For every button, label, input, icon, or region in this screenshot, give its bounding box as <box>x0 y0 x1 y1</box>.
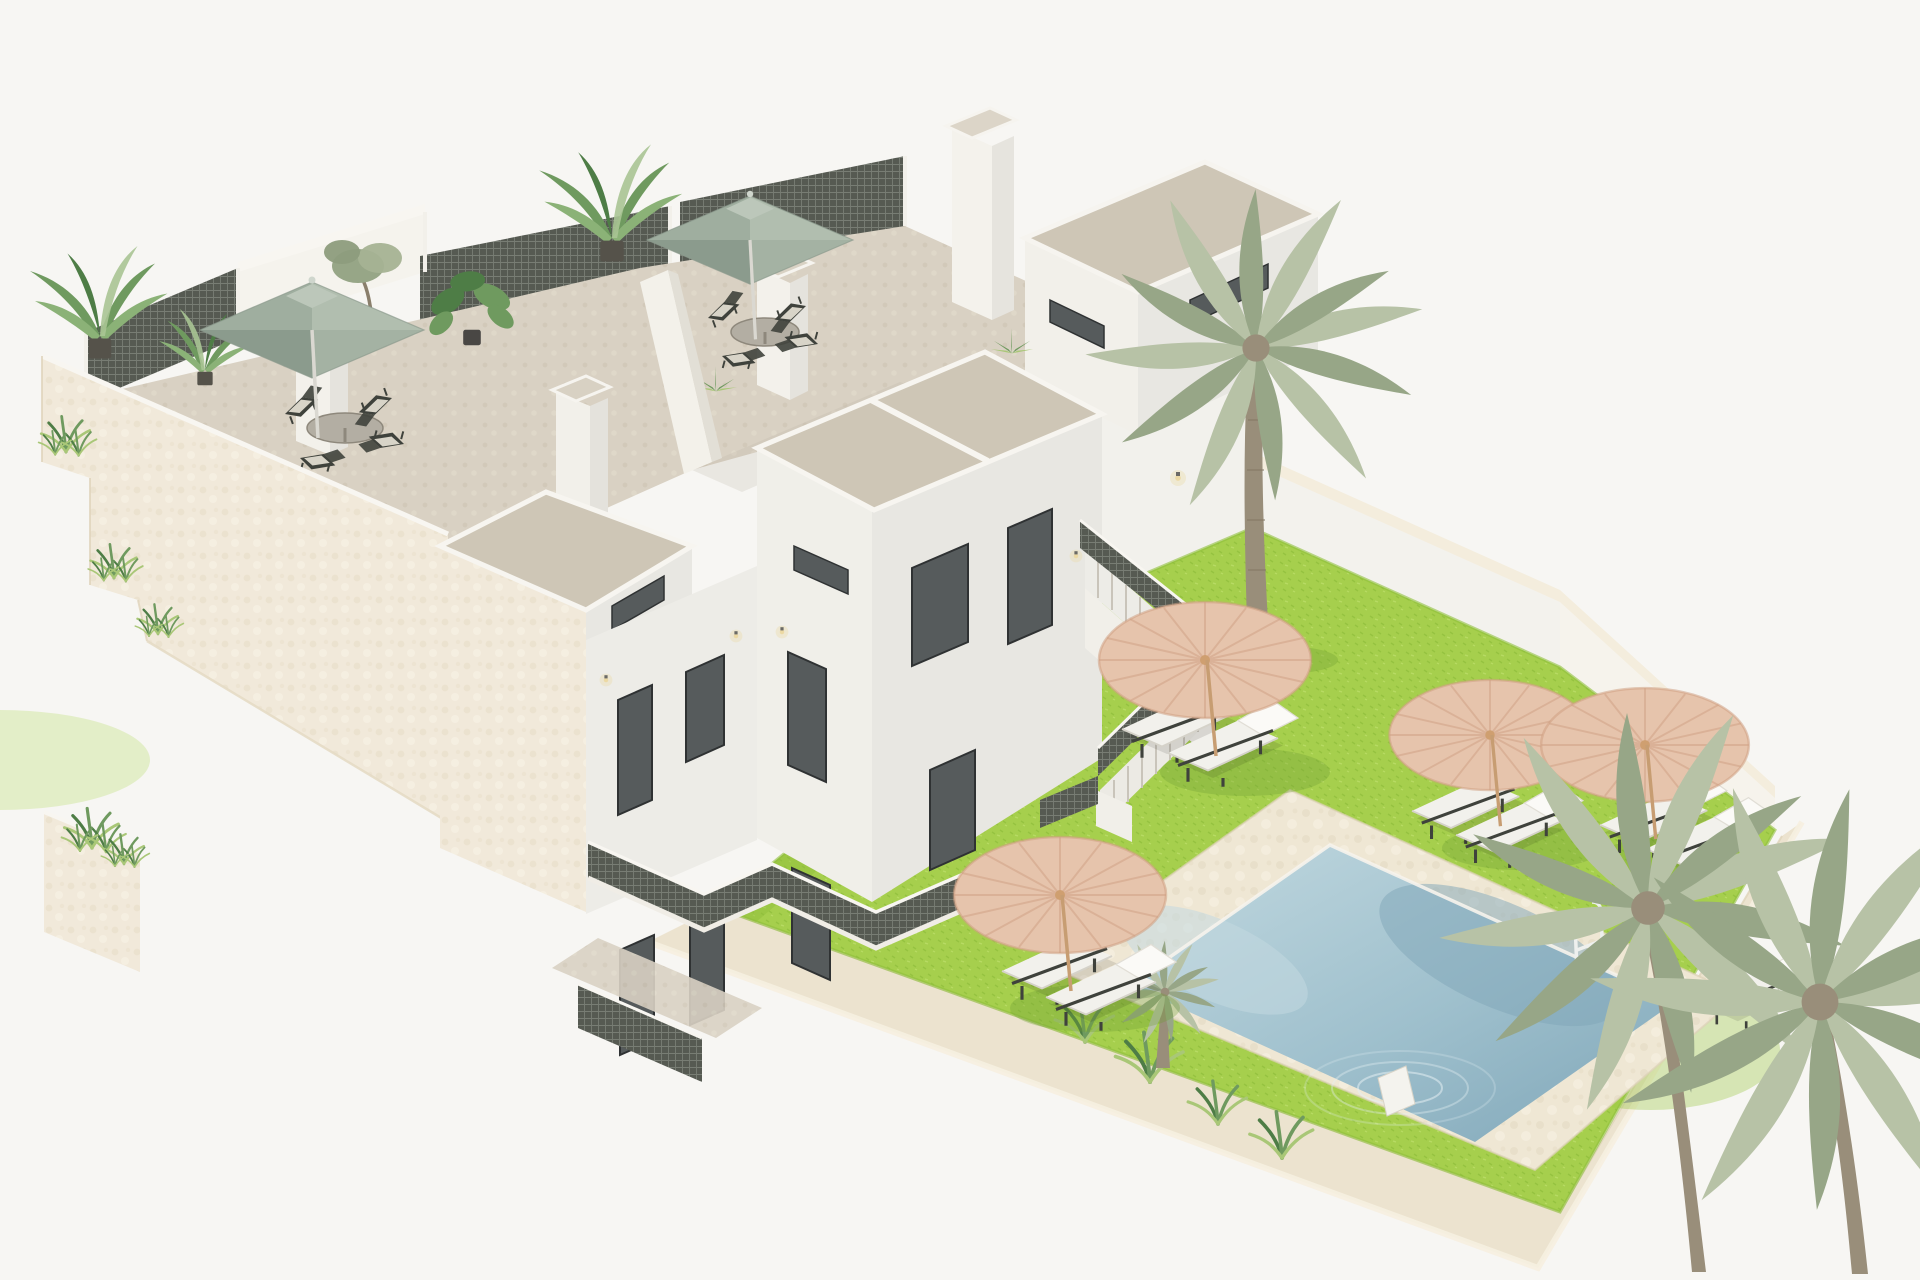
window <box>686 655 724 762</box>
wall-lamp-icon <box>776 626 789 639</box>
door <box>788 652 826 782</box>
render-canvas: 3D render of a modern white Mediterranea… <box>0 0 1920 1280</box>
door <box>618 685 652 815</box>
door <box>930 750 975 870</box>
door <box>1008 509 1052 644</box>
wall-lamp-icon <box>1170 470 1186 486</box>
wall-lamp-icon <box>1070 550 1083 563</box>
wall-lamp-icon <box>730 630 743 643</box>
wall-lamp-icon <box>600 674 613 687</box>
architectural-render: 3D render of a modern white Mediterranea… <box>0 0 1920 1280</box>
